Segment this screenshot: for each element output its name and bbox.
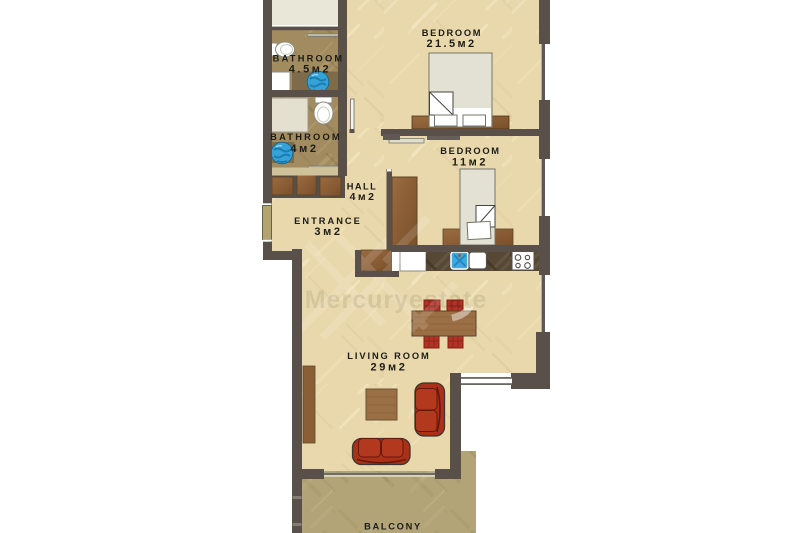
- svg-text:4м2: 4м2: [290, 143, 318, 155]
- svg-text:BATHROOM: BATHROOM: [273, 54, 345, 64]
- svg-text:Mercuryestate: Mercuryestate: [305, 286, 488, 314]
- svg-text:BEDROOM: BEDROOM: [422, 28, 482, 38]
- svg-text:ENTRANCE: ENTRANCE: [294, 216, 362, 226]
- svg-text:4м2: 4м2: [350, 191, 377, 203]
- svg-text:HALL: HALL: [347, 182, 377, 192]
- svg-text:11м2: 11м2: [452, 157, 488, 169]
- svg-text:BALCONY: BALCONY: [364, 522, 422, 532]
- svg-text:29м2: 29м2: [371, 362, 408, 374]
- svg-text:4.5м2: 4.5м2: [289, 64, 332, 76]
- svg-text:21.5м2: 21.5м2: [426, 38, 476, 50]
- svg-text:BATHROOM: BATHROOM: [270, 132, 342, 142]
- svg-text:LIVING ROOM: LIVING ROOM: [347, 351, 430, 361]
- svg-text:BEDROOM: BEDROOM: [440, 146, 500, 156]
- svg-text:3м2: 3м2: [314, 226, 342, 238]
